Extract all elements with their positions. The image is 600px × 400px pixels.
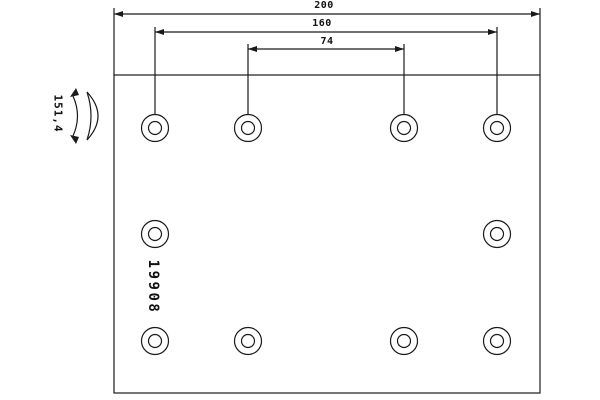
part-number-label: 19908 [146,259,160,315]
hole-outer [484,221,511,248]
arrow-160-right [488,29,497,35]
hole-inner [491,122,504,135]
hole-outer [235,115,262,142]
rivet-holes-group [142,115,511,355]
radius-label: 151,4 [53,95,64,133]
dimension-label-outer-hole-span: 160 [302,19,342,29]
hole-inner [398,122,411,135]
hole-inner [149,228,162,241]
hole-outer [484,328,511,355]
hole-outer [235,328,262,355]
hole-outer [484,115,511,142]
drawing-canvas [0,0,600,400]
arrow-200-left [114,11,123,17]
arrow-200-right [531,11,540,17]
hole-inner [491,335,504,348]
arrow-radius-top [70,88,79,97]
hole-inner [242,122,255,135]
arrow-160-left [155,29,164,35]
hole-outer [142,328,169,355]
hole-inner [491,228,504,241]
hole-inner [149,335,162,348]
hole-outer [142,115,169,142]
hole-outer [391,115,418,142]
dimension-label-total-length: 200 [304,1,344,11]
dimension-label-inner-hole-span: 74 [307,37,347,47]
arrow-74-left [248,46,257,52]
hole-inner [398,335,411,348]
hole-outer [142,221,169,248]
arrow-74-right [395,46,404,52]
technical-drawing: 200 160 74 151,4 19908 [0,0,600,400]
hole-inner [242,335,255,348]
lining-plate-outline [114,75,540,393]
hole-outer [391,328,418,355]
radius-dimension-arc [73,96,78,136]
arrow-radius-bottom [70,135,79,144]
hole-inner [149,122,162,135]
lining-profile-arc [87,92,98,140]
